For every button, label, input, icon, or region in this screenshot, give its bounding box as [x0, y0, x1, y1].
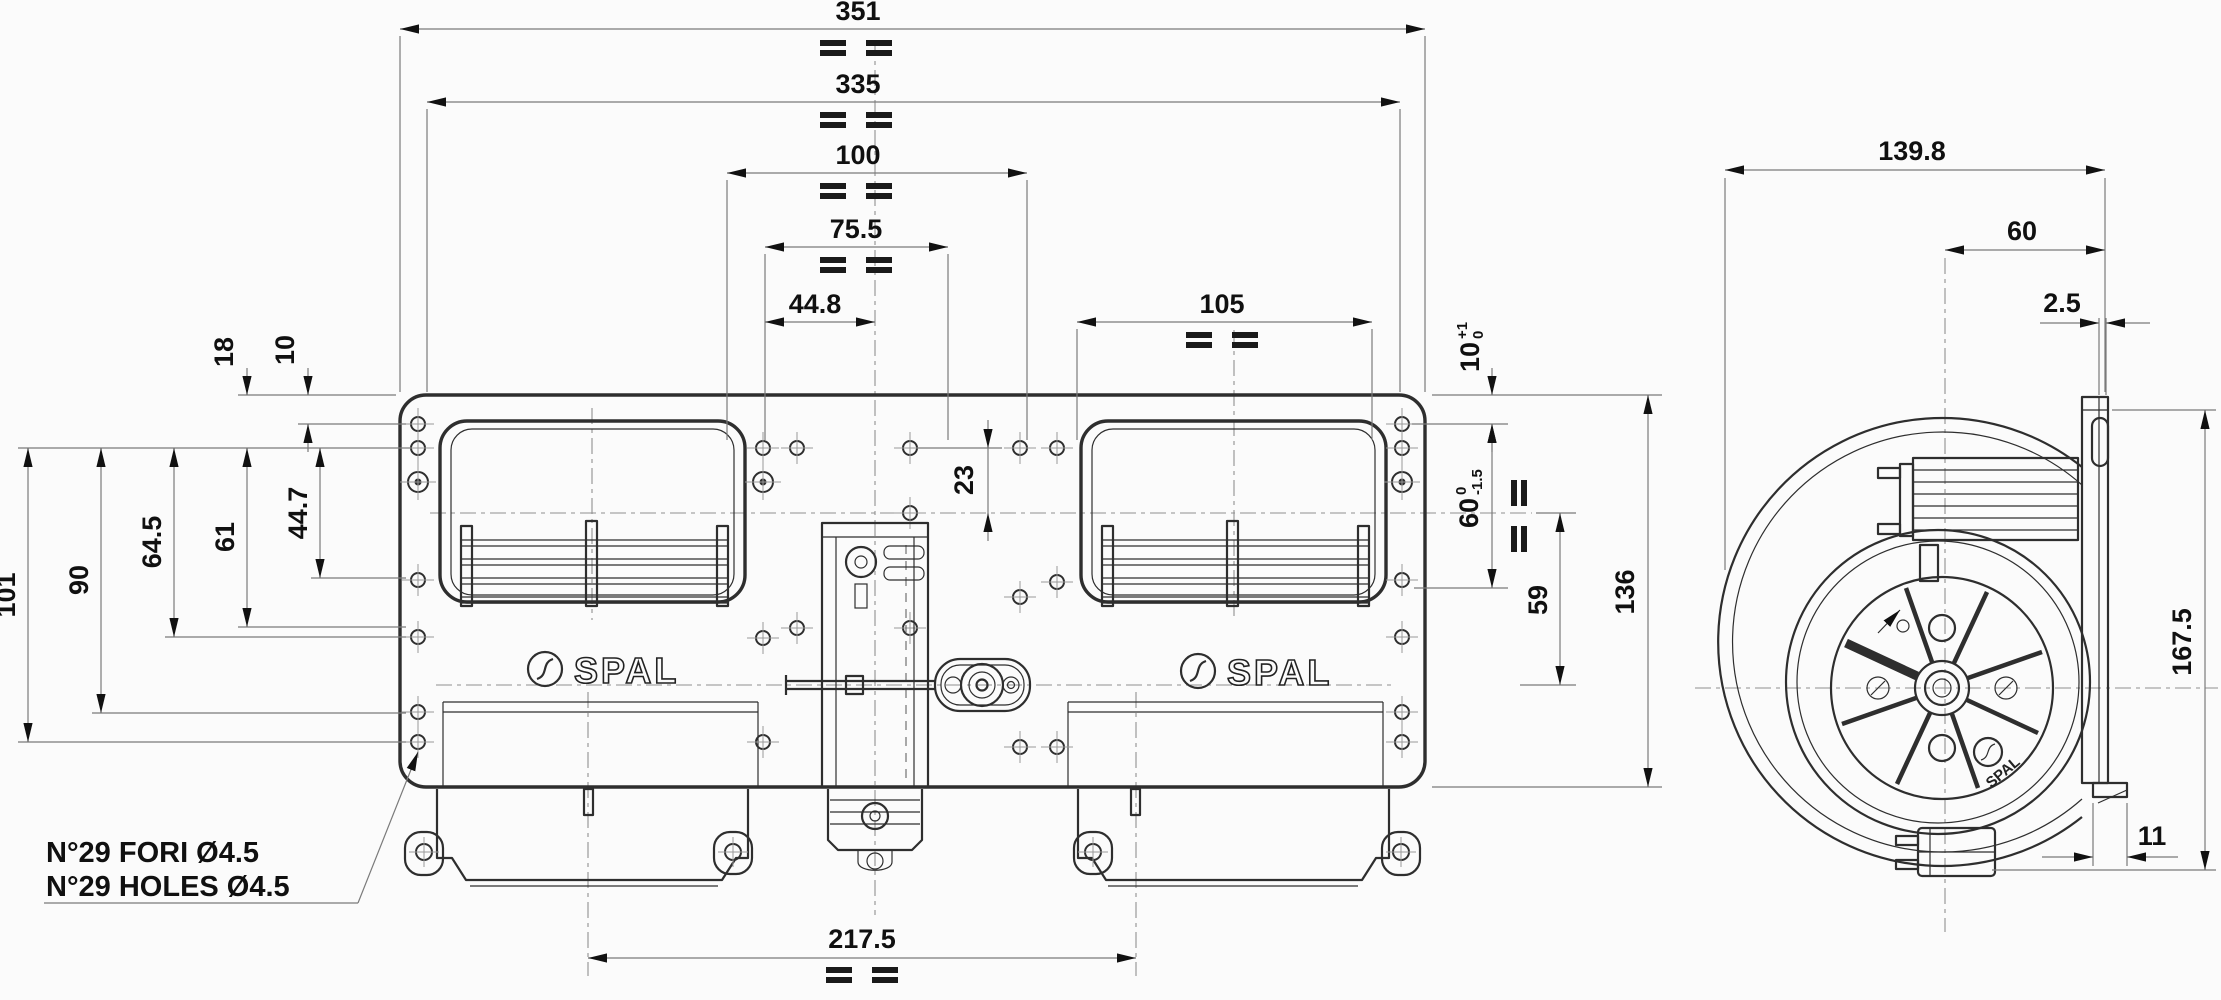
- dimensions-front-left: 101 90 64.5 61 44.7 18 10: [0, 335, 410, 742]
- dim-44-8: 44.8: [765, 289, 875, 322]
- drawing-page: SPAL SPAL: [0, 0, 2221, 1000]
- dim-61: 61: [210, 448, 247, 627]
- plate-foot-tab: [2093, 783, 2127, 797]
- svg-text:0: 0: [1453, 487, 1470, 495]
- dim-10: 10: [270, 335, 308, 452]
- dim-59: 59: [1523, 513, 1560, 685]
- dimensions-front-right: 10 +1 0 60 0 -1.5 59 136: [1412, 322, 1662, 787]
- dim-105: 105: [1077, 289, 1372, 440]
- spal-logo-text: SPAL: [1983, 754, 2024, 792]
- bottom-recess-left: [443, 702, 758, 787]
- grille-right: [1102, 521, 1369, 606]
- svg-text:11: 11: [2138, 821, 2167, 851]
- hole-note: N°29 FORI Ø4.5 N°29 HOLES Ø4.5: [44, 752, 418, 903]
- front-view: SPAL SPAL: [400, 395, 1425, 886]
- svg-text:23: 23: [949, 465, 979, 495]
- leader-line: [358, 752, 418, 903]
- motor-cylinder: [1878, 458, 2078, 581]
- dim-101: 101: [0, 448, 28, 742]
- svg-text:101: 101: [0, 572, 21, 617]
- dim-139-8: 139.8: [1725, 136, 2105, 570]
- technical-drawing: SPAL SPAL: [0, 0, 2221, 1000]
- svg-text:351: 351: [835, 0, 880, 26]
- dim-18: 18: [209, 337, 247, 395]
- mounting-holes: [400, 408, 1420, 763]
- keyhole-slot: [2092, 418, 2108, 466]
- dim-64-5: 64.5: [137, 448, 174, 637]
- dim-60-side: 60: [1945, 216, 2105, 250]
- dim-167-5: 167.5: [1992, 410, 2216, 870]
- svg-text:75.5: 75.5: [830, 214, 883, 244]
- svg-text:139.8: 139.8: [1878, 136, 1946, 166]
- rotation-arrow-icon: [1878, 610, 1909, 633]
- dim-136: 136: [1610, 395, 1648, 787]
- lower-housing-right: [1074, 789, 1420, 886]
- spal-logo-text: SPAL: [574, 650, 679, 691]
- dim-44-7: 44.7: [283, 448, 320, 578]
- spal-logo-side: SPAL: [1974, 738, 2023, 792]
- svg-text:0: 0: [1470, 331, 1487, 339]
- svg-text:-1.5: -1.5: [1469, 469, 1486, 495]
- svg-text:64.5: 64.5: [137, 516, 167, 569]
- spal-logo-right: SPAL: [1181, 652, 1332, 693]
- grille-left: [461, 521, 728, 606]
- dim-11: 11: [2042, 803, 2178, 866]
- dim-2-5: 2.5: [2040, 288, 2150, 395]
- svg-text:60: 60: [1454, 498, 1484, 528]
- lower-housing-left: [405, 789, 752, 886]
- scroll-housing: [1718, 418, 2127, 866]
- svg-text:+1: +1: [1454, 322, 1471, 339]
- svg-text:217.5: 217.5: [828, 924, 896, 954]
- dimensions-front-top: 351 335 100 75.5: [400, 0, 1425, 440]
- svg-text:10: 10: [270, 335, 300, 365]
- svg-text:59: 59: [1523, 585, 1553, 615]
- dim-60-tol: 60 0 -1.5: [1453, 424, 1527, 588]
- svg-text:167.5: 167.5: [2167, 608, 2197, 676]
- svg-text:44.7: 44.7: [283, 487, 313, 540]
- mounting-plate: [2082, 397, 2127, 797]
- svg-text:335: 335: [835, 69, 880, 99]
- svg-text:18: 18: [209, 337, 239, 367]
- side-view: SPAL: [1718, 397, 2127, 876]
- svg-text:10: 10: [1455, 342, 1485, 372]
- dim-90: 90: [64, 448, 101, 713]
- svg-text:90: 90: [64, 565, 94, 595]
- clamp-screw: [846, 547, 876, 577]
- svg-text:44.8: 44.8: [789, 289, 842, 319]
- center-module: [786, 523, 935, 787]
- dim-75-5: 75.5: [765, 214, 948, 440]
- svg-text:2.5: 2.5: [2043, 288, 2081, 318]
- centerlines: [430, 40, 2218, 976]
- bottom-recess-right: [1068, 702, 1383, 787]
- svg-text:136: 136: [1610, 569, 1640, 614]
- dim-23: 23: [918, 420, 1002, 541]
- spal-logo-text: SPAL: [1227, 652, 1332, 693]
- spal-logo-left: SPAL: [528, 650, 679, 691]
- dim-217-5: 217.5: [588, 924, 1136, 983]
- svg-text:61: 61: [210, 522, 240, 552]
- svg-text:60: 60: [2007, 216, 2037, 246]
- note-line-2: N°29 HOLES Ø4.5: [46, 871, 290, 903]
- dim-351: 351: [400, 0, 1425, 392]
- svg-text:105: 105: [1199, 289, 1244, 319]
- note-line-1: N°29 FORI Ø4.5: [46, 837, 259, 869]
- dim-10-tol: 10 +1 0: [1454, 322, 1492, 452]
- svg-text:100: 100: [835, 140, 880, 170]
